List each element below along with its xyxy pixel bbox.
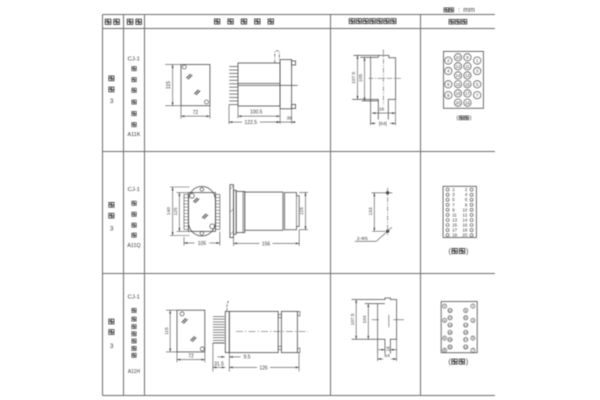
svg-text:14: 14: [448, 324, 452, 328]
svg-text:17: 17: [464, 338, 468, 342]
svg-text:3: 3: [110, 343, 114, 350]
svg-text:8: 8: [444, 349, 446, 353]
svg-text:19: 19: [465, 100, 470, 105]
svg-text:CJ-1: CJ-1: [128, 294, 140, 300]
svg-text:A11Q: A11Q: [127, 243, 140, 249]
svg-text:31.5: 31.5: [214, 361, 224, 367]
svg-text:20: 20: [456, 100, 461, 105]
svg-text:(: (: [456, 116, 458, 122]
svg-text:64: 64: [384, 353, 390, 359]
svg-text:107.5: 107.5: [350, 313, 356, 325]
svg-text:126: 126: [259, 365, 268, 371]
svg-text:105: 105: [198, 241, 207, 247]
svg-text:72: 72: [193, 110, 199, 116]
svg-text:156: 156: [262, 241, 271, 247]
svg-text:16: 16: [456, 82, 461, 87]
svg-text:1: 1: [472, 305, 474, 309]
svg-text:16: 16: [448, 331, 452, 335]
svg-text:115: 115: [299, 207, 305, 215]
svg-text:20: 20: [462, 233, 467, 238]
svg-text:13: 13: [464, 324, 468, 328]
svg-text:12: 12: [456, 64, 461, 69]
svg-text:): ): [466, 249, 468, 256]
svg-text:18: 18: [448, 338, 452, 342]
svg-text:): ): [470, 116, 472, 122]
svg-text:133: 133: [368, 207, 374, 215]
svg-text:10: 10: [456, 55, 461, 60]
svg-text:7: 7: [472, 349, 474, 353]
svg-text:9.5: 9.5: [244, 355, 251, 361]
svg-text:20: 20: [448, 345, 452, 349]
svg-text:115: 115: [164, 327, 170, 335]
svg-text:17: 17: [465, 91, 470, 96]
svg-text:3: 3: [110, 225, 114, 232]
svg-text:A11K: A11K: [128, 132, 141, 138]
svg-text:16: 16: [379, 107, 385, 113]
svg-text:100.5: 100.5: [250, 110, 263, 116]
svg-text:mm: mm: [463, 7, 475, 14]
svg-text:122.5: 122.5: [245, 120, 258, 126]
svg-text:9: 9: [465, 309, 467, 313]
svg-text:104: 104: [362, 315, 368, 323]
svg-text:2: 2: [444, 305, 446, 309]
svg-text:10: 10: [448, 309, 452, 313]
svg-text:11: 11: [464, 316, 468, 320]
svg-text:15: 15: [465, 82, 470, 87]
svg-text:35: 35: [287, 116, 293, 122]
svg-text:19: 19: [452, 233, 457, 238]
svg-text:): ): [466, 359, 468, 366]
svg-text:140: 140: [166, 207, 172, 215]
svg-text:11: 11: [465, 64, 470, 69]
svg-text:13: 13: [465, 73, 470, 78]
svg-text:72: 72: [188, 354, 194, 360]
svg-text:A11H: A11H: [128, 369, 141, 375]
svg-text:[64]: [64]: [379, 121, 387, 127]
svg-text:115: 115: [166, 81, 172, 89]
svg-text:105: 105: [358, 74, 364, 82]
svg-text:107.5: 107.5: [351, 71, 357, 83]
svg-text:18: 18: [456, 91, 461, 96]
svg-text:CJ-1: CJ-1: [128, 56, 140, 62]
svg-text::: :: [458, 7, 460, 14]
svg-text:6: 6: [444, 337, 446, 341]
svg-text:2-Φ5: 2-Φ5: [357, 236, 368, 242]
svg-text:CJ-1: CJ-1: [128, 187, 140, 193]
svg-text:15: 15: [464, 331, 468, 335]
svg-text:12: 12: [448, 316, 452, 320]
svg-text:4: 4: [444, 319, 446, 323]
svg-text:125: 125: [173, 207, 179, 215]
svg-text:5: 5: [472, 337, 474, 341]
svg-text:16: 16: [385, 346, 390, 352]
svg-text:19: 19: [464, 345, 468, 349]
svg-text:14: 14: [456, 73, 461, 78]
svg-text:3: 3: [472, 319, 474, 323]
svg-text:3: 3: [110, 98, 114, 105]
